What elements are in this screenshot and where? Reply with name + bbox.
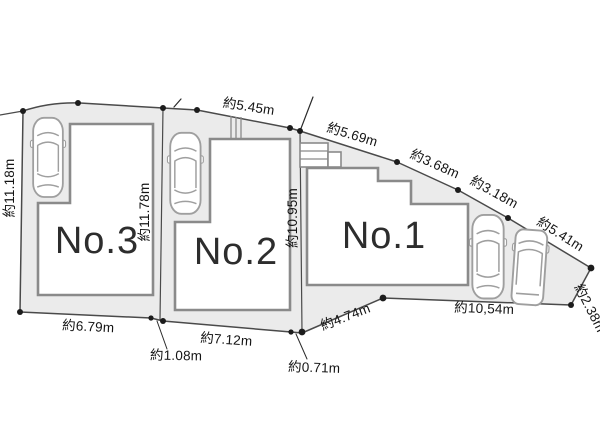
lot-label-no2: No.2 <box>194 231 278 273</box>
leader-0-71 <box>296 334 307 359</box>
dim-east-side: 約2.38m <box>571 281 600 334</box>
car-icon <box>30 118 65 197</box>
dim-south-jog-no3-no2: 約1.08m <box>150 348 202 364</box>
car-icon <box>167 133 203 214</box>
car-icon <box>469 215 506 299</box>
lot-label-no1: No.1 <box>342 215 426 257</box>
dim-south-jog-no2-no1: 約0.71m <box>288 359 341 376</box>
dim-divider-no2-no1: 約10.95m <box>285 188 300 248</box>
road-edge-extension <box>0 111 23 115</box>
dim-divider-no3-no2: 約11.78m <box>137 183 152 242</box>
lot-layout-diagram: No.3 No.2 No.1 約11.18m 約11.78m 約10.95m 約… <box>0 0 600 448</box>
boundary-tick <box>300 97 313 131</box>
van-icon <box>509 229 551 306</box>
site-plan-svg: No.3 No.2 No.1 約11.18m 約11.78m 約10.95m 約… <box>0 0 600 448</box>
leader-1-08 <box>157 321 167 349</box>
dim-south-no1: 約10,54m <box>454 300 514 317</box>
dim-west-side: 約11.18m <box>2 159 17 218</box>
dim-south-no3: 約6.79m <box>62 318 115 336</box>
dim-north-no2: 約5.45m <box>222 95 276 118</box>
lot-label-no3: No.3 <box>55 220 139 262</box>
dim-south-no2: 約7.12m <box>200 330 253 349</box>
boundary-tick <box>174 99 181 107</box>
